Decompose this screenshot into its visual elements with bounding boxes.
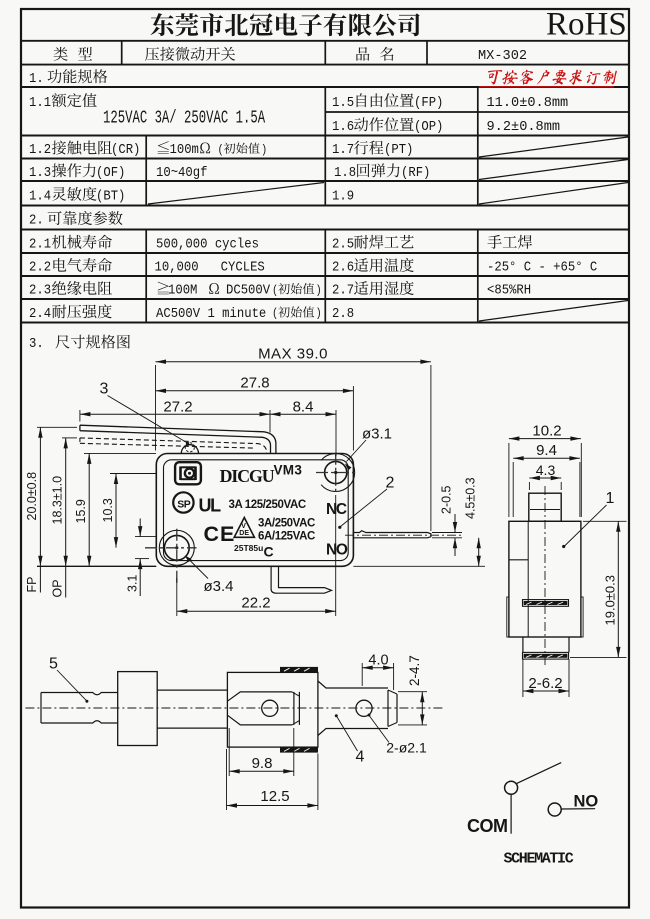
svg-text:ø3.4: ø3.4: [203, 578, 233, 595]
svg-text:2.3: 2.3: [29, 282, 51, 298]
svg-text:VM3: VM3: [274, 463, 303, 478]
svg-text:1.2: 1.2: [29, 141, 51, 157]
svg-text:(: (: [272, 308, 278, 321]
svg-text:25T85u: 25T85u: [234, 543, 263, 553]
svg-text:2-6.2: 2-6.2: [528, 675, 562, 692]
svg-text:(RF): (RF): [401, 164, 430, 180]
svg-text:9.2±0.8mm: 9.2±0.8mm: [487, 119, 561, 135]
svg-text:3A/250VAC: 3A/250VAC: [258, 518, 315, 530]
svg-text:MAX 39.0: MAX 39.0: [258, 346, 328, 363]
svg-text:27.2: 27.2: [163, 399, 192, 416]
svg-text:9.4: 9.4: [536, 442, 557, 459]
svg-text:(BT): (BT): [96, 188, 125, 204]
svg-text:1: 1: [606, 490, 615, 507]
svg-text:-25° C - +65° C: -25° C - +65° C: [487, 259, 597, 275]
svg-text:): ): [261, 144, 267, 157]
svg-text:4: 4: [356, 749, 365, 766]
svg-text:SP: SP: [177, 499, 191, 511]
svg-text:12.5: 12.5: [260, 788, 289, 805]
svg-text:1.3: 1.3: [29, 164, 51, 180]
svg-text:CE: CE: [204, 522, 236, 546]
svg-text:100m: 100m: [170, 141, 199, 157]
svg-text:(PT): (PT): [384, 141, 413, 157]
svg-text:3.: 3.: [29, 335, 44, 351]
svg-text:2.2: 2.2: [29, 259, 51, 275]
svg-text:DE: DE: [239, 530, 249, 537]
svg-text:COM: COM: [467, 816, 508, 836]
svg-text:2-4.7: 2-4.7: [407, 655, 422, 686]
svg-text:15.9: 15.9: [74, 499, 88, 523]
svg-text:1.5: 1.5: [332, 94, 354, 110]
svg-text:4.0: 4.0: [368, 653, 388, 669]
svg-text:4.5±0.3: 4.5±0.3: [464, 477, 478, 519]
svg-text:6A/125VAC: 6A/125VAC: [258, 531, 315, 543]
svg-text:11.0±0.8mm: 11.0±0.8mm: [487, 95, 569, 111]
svg-text:(CR): (CR): [111, 141, 140, 157]
svg-text:125VAC 3A/ 250VAC 1.5A: 125VAC 3A/ 250VAC 1.5A: [103, 107, 266, 128]
svg-text:2.: 2.: [29, 212, 44, 228]
svg-text:(OP): (OP): [414, 118, 443, 134]
svg-text:19.0±0.3: 19.0±0.3: [603, 575, 618, 626]
svg-text:2.6: 2.6: [332, 259, 354, 275]
svg-text:3.1: 3.1: [126, 575, 140, 592]
svg-text:8.4: 8.4: [293, 399, 314, 416]
svg-text:): ): [316, 285, 322, 298]
svg-text:22.2: 22.2: [241, 595, 270, 612]
svg-text:DICGU: DICGU: [220, 466, 275, 486]
svg-text:1.4: 1.4: [29, 188, 51, 204]
svg-text:SCHEMATIC: SCHEMATIC: [504, 851, 574, 868]
svg-text:DC500V: DC500V: [226, 282, 270, 298]
svg-text:100M: 100M: [168, 282, 197, 298]
svg-text:2-ø2.1: 2-ø2.1: [386, 740, 427, 756]
svg-text:20.0±0.8: 20.0±0.8: [25, 472, 39, 521]
svg-text:<85%RH: <85%RH: [487, 282, 531, 298]
svg-text:AC500V 1 minute: AC500V 1 minute: [156, 305, 266, 321]
svg-text:2.5: 2.5: [332, 236, 354, 252]
svg-text:2.7: 2.7: [332, 282, 354, 298]
svg-text:5: 5: [49, 656, 58, 673]
svg-text:3: 3: [100, 381, 109, 398]
svg-text:NC: NC: [326, 501, 347, 518]
svg-text:UL: UL: [199, 496, 222, 516]
svg-text:1.6: 1.6: [332, 118, 354, 134]
svg-text:1.7: 1.7: [332, 141, 354, 157]
svg-text:10.3: 10.3: [101, 498, 115, 522]
svg-text:10~40gf: 10~40gf: [156, 164, 208, 180]
svg-text:2.8: 2.8: [332, 305, 354, 321]
svg-text:ø3.1: ø3.1: [362, 426, 392, 443]
svg-text:10,000 CYCLES: 10,000 CYCLES: [155, 259, 265, 275]
svg-text:4.3: 4.3: [536, 462, 556, 478]
svg-text:9.8: 9.8: [252, 755, 273, 772]
svg-text:MX-302: MX-302: [478, 48, 527, 64]
svg-text:500,000 cycles: 500,000 cycles: [156, 236, 259, 252]
svg-text:27.8: 27.8: [240, 375, 269, 392]
svg-text:): ): [316, 308, 322, 321]
svg-text:(FP): (FP): [414, 94, 443, 110]
svg-text:1.: 1.: [29, 70, 44, 86]
svg-text:1.9: 1.9: [332, 188, 354, 204]
svg-text:2-0.5: 2-0.5: [440, 485, 454, 514]
svg-text:NO: NO: [574, 793, 599, 811]
svg-text:1.1: 1.1: [29, 94, 51, 110]
svg-text:10.2: 10.2: [532, 423, 561, 440]
svg-text:(: (: [272, 285, 278, 298]
svg-text:(: (: [218, 144, 224, 157]
svg-text:18.3±1.0: 18.3±1.0: [51, 476, 65, 525]
svg-text:2.1: 2.1: [29, 236, 51, 252]
svg-text:1.8: 1.8: [334, 164, 356, 180]
svg-text:C: C: [264, 543, 274, 559]
svg-text:FP: FP: [25, 577, 39, 593]
svg-text:2.4: 2.4: [29, 305, 51, 321]
svg-text:(OF): (OF): [96, 164, 125, 180]
svg-text:RoHS: RoHS: [546, 7, 627, 43]
svg-text:NO: NO: [326, 542, 348, 559]
svg-text:OP: OP: [51, 579, 65, 597]
svg-text:V: V: [241, 523, 246, 530]
svg-text:3A 125/250VAC: 3A 125/250VAC: [229, 499, 306, 511]
